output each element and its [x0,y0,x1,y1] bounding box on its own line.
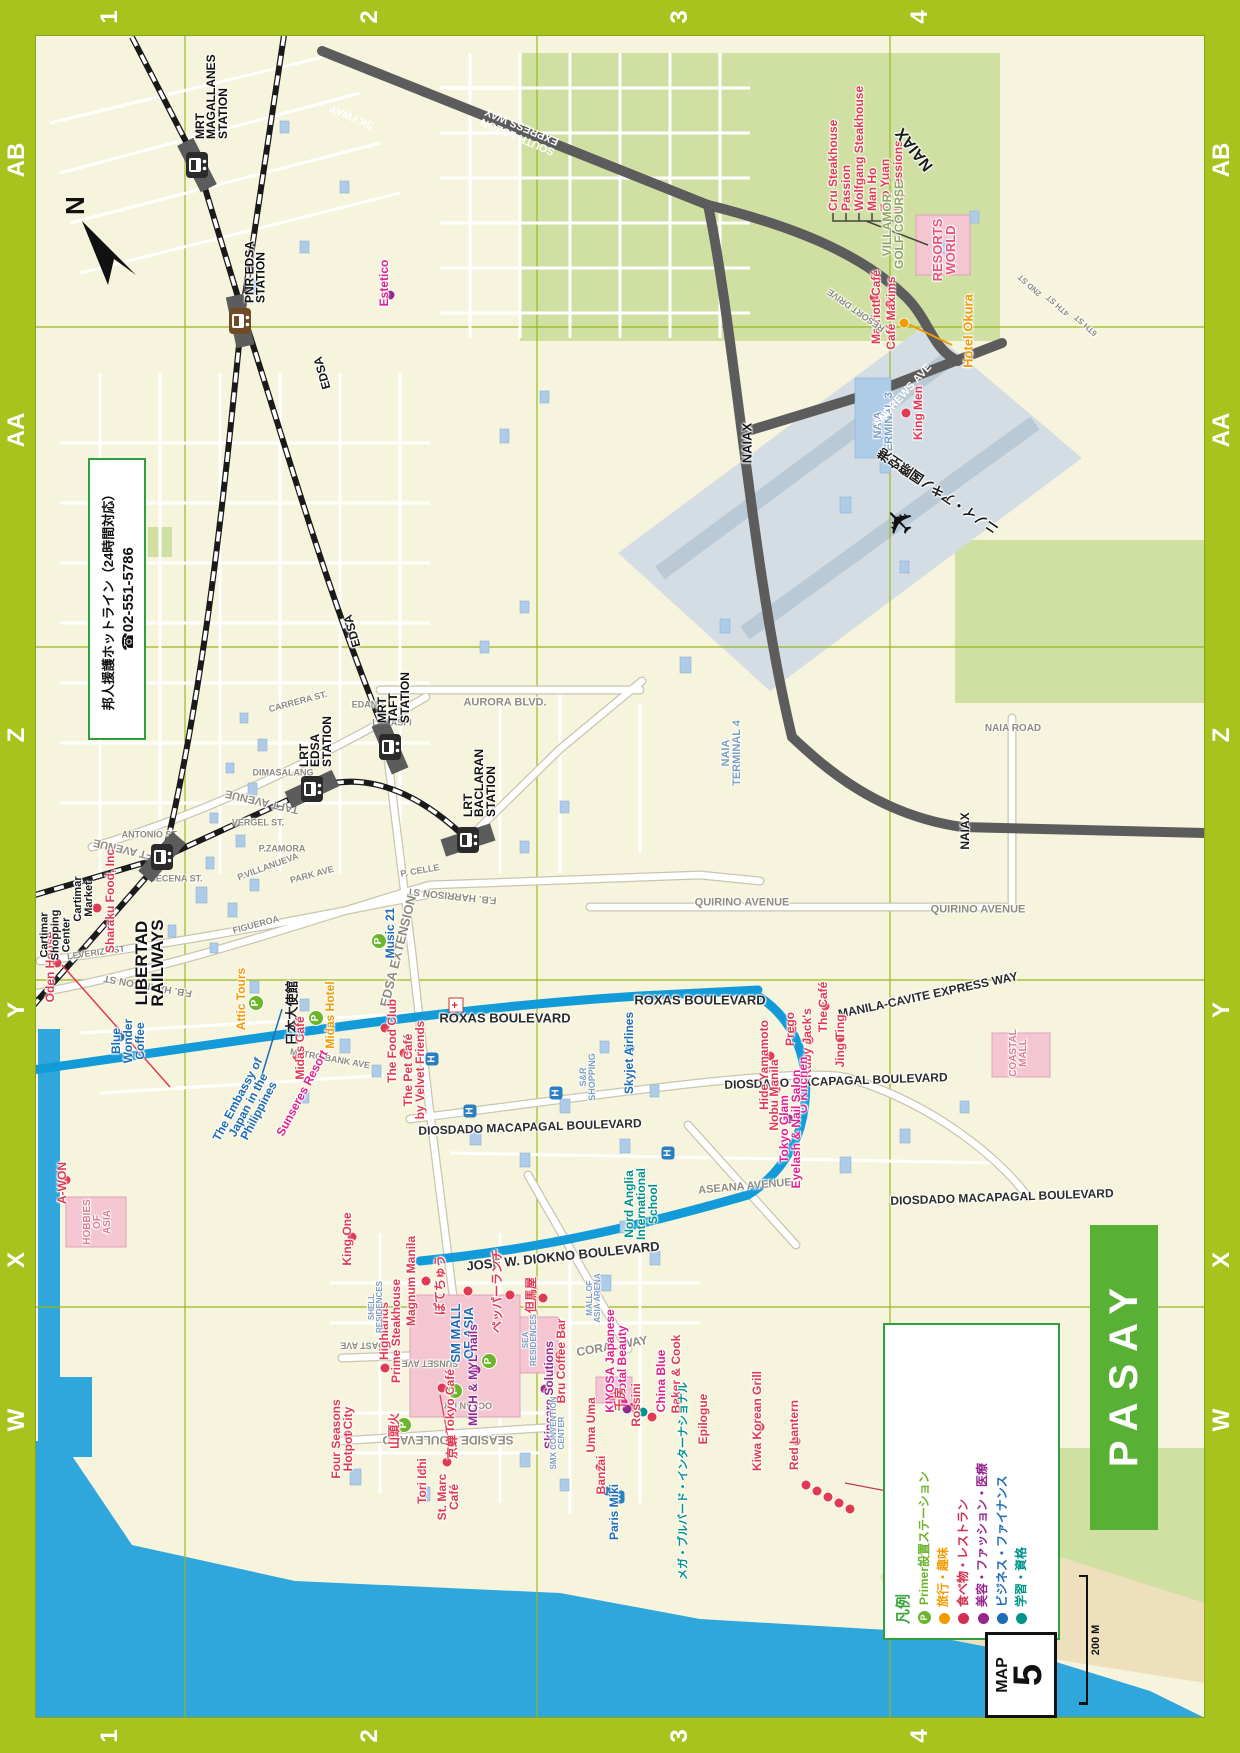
border-right [0,0,1240,35]
park-area [520,53,1000,341]
building [196,887,207,903]
poi-dot [902,409,911,418]
grid-label-2: 2 [356,10,384,23]
map-label-label: メガ・ブルバード・インターナショナル [679,1382,690,1580]
station-label-libertad-railways: LIBERTAD RAILWAYS [134,919,166,1006]
map-label-s-r: S&R SHOPPING [579,1053,597,1101]
train-icon [229,308,251,334]
map-label-label: ぽてちゅう [434,1255,446,1315]
map-label-smx-convention: SMX CONVENTION CENTER [550,1397,566,1470]
map-label-man-ho: Man Ho [866,168,878,211]
map-label-kiwa-korean-grill: Kiwa Korean Grill [751,1371,763,1471]
building [900,561,909,573]
map-label-quirino-avenue: QUIRINO AVENUE [931,905,1026,916]
station-label-mrt-magallanes-station: MRT MAGALLANES STATION [195,54,229,139]
poi-dot [539,1294,548,1303]
building [620,1139,630,1153]
map-label-label: 但馬屋 [525,1277,537,1313]
grid-label-z: Z [1208,728,1236,743]
park-area [955,540,1205,703]
train-icon [186,152,208,178]
poi-dot [813,1487,822,1496]
primer-station-icon: P [308,1010,324,1026]
category-dot-icon [939,1613,950,1624]
building [250,981,259,993]
map-label-mich-myl-nails: MICH & MYL nails [467,1324,479,1426]
map-label-nord-anglia: Nord Anglia International School [623,1168,659,1240]
map-label-midas-caf: Midas Café [294,1016,306,1079]
scale-bar-label: 200 M [1090,1575,1102,1705]
building [520,1153,530,1167]
map-label-mall-of: MALL OF ASIA ARENA [586,1273,602,1322]
map-label-estetico: Estetico [378,260,390,307]
category-dot-icon [1016,1613,1027,1624]
building [960,1101,969,1113]
building [258,739,267,751]
poi-dot [648,1413,657,1422]
building [300,999,309,1011]
legend-title: 凡例 [892,1339,913,1624]
building [168,925,176,937]
grid-label-2: 2 [356,1729,384,1742]
map-label-p-zamora: P.ZAMORA [259,845,306,854]
map-label-skyjet-airlines: Skyjet Airlines [623,1012,635,1094]
map-label-label: 京蝉 [446,1435,458,1459]
border-top [0,0,35,1753]
map-label-the-food-club: The Food Club [386,999,398,1083]
map-label-uma-uma: Uma Uma [585,1397,597,1452]
map-label-cru-steakhouse: Cru Steakhouse [827,120,839,211]
map-label-paris-miki: Paris Miki [608,1484,620,1540]
category-dot-icon [958,1613,969,1624]
category-dot-icon [978,1613,989,1624]
map-label-shell: SHELL RESIDENCES [368,1281,384,1333]
map-label-label: 山頭火 [388,1413,400,1449]
legend-item-label: 食べ物・レストラン [954,1339,973,1624]
map-label-the-caf: The Café [817,982,829,1033]
map-number-box: MAP 5 [985,1632,1057,1718]
building [650,1085,659,1097]
scale-bar: 200 M [1086,1575,1102,1705]
primer-station-icon: P [918,1611,931,1624]
primer-station-icon: P [481,1353,497,1369]
map-stage: Cru SteakhousePassionWolfgang Steakhouse… [0,0,1240,1753]
map-label-roxas-boulevard: ROXAS BOULEVARD [634,994,765,1007]
hotel-icon: H [464,1105,477,1118]
grid-label-4: 4 [906,1729,934,1742]
hotel-icon: H [662,1147,675,1160]
station-label-pnr-edsa-station: PNR EDSA STATION [245,241,268,303]
map-label-prego: Prego [784,1012,796,1046]
map-label-a-won: A-WON [56,1162,68,1204]
building [500,429,509,443]
building [600,1041,609,1053]
grid-label-w: W [3,1409,31,1432]
building [340,1039,350,1053]
map-label-china-blue: China Blue [655,1350,667,1413]
poi-dot [846,1505,855,1514]
map-label-king-one: King One [341,1212,353,1265]
grid-label-3: 3 [666,1729,694,1742]
legend-box: 凡例 PPrimer設置ステーション旅行・趣味食べ物・レストラン美容・ファッショ… [883,1323,1060,1640]
map-label-aurora-blvd: AURORA BLVD. [463,698,546,709]
map-label-tori-ichi: Tori Ichi [416,1458,428,1504]
building [970,211,979,223]
legend-items: PPrimer設置ステーション旅行・趣味食べ物・レストラン美容・ファッション・医… [915,1339,1032,1624]
building [226,763,234,773]
legend-item-label: ビジネス・ファイナンス [993,1475,1012,1607]
grid-label-4: 4 [906,10,934,23]
building [540,391,549,403]
map-label-red-lantern: Red Lantern [788,1400,800,1470]
building [340,181,349,193]
grid-label-aa: AA [3,413,31,448]
map-number: 5 [1010,1664,1046,1686]
poi-dot [506,1291,515,1300]
map-label-passion: Passion [840,165,852,211]
grid-label-ab: AB [1208,143,1236,178]
poi-dot [464,1287,473,1296]
grid-label-aa: AA [1208,413,1236,448]
map-label-naia-road: NAIA ROAD [985,724,1041,734]
legend-item-primer: PPrimer設置ステーション [915,1339,934,1624]
legend-item-label: 食べ物・レストラン [954,1499,973,1607]
map-label-sea: SEA RESIDENCES [522,1314,538,1366]
primer-station-icon: P [248,995,264,1011]
map-label-tokyo-caf: Tokyo Café [444,1369,456,1433]
map-label-label: ペッパーランチ [491,1249,503,1333]
map-label-the-pet-caf: The Pet Café by Velvet Friends [402,1021,426,1120]
building [210,813,218,823]
hotel-icon: H [426,1053,439,1066]
compass-north-arrow: N [48,183,138,303]
grid-label-y: Y [1208,1002,1236,1018]
building [228,903,237,917]
map-label-label: 千房 [614,1387,626,1411]
map-label-rossini: Rossini [630,1383,642,1426]
train-icon [379,734,401,760]
building [520,1453,530,1467]
map-label-villamor: VILLAMOR GOLF COURSE [881,181,905,269]
building [480,641,489,653]
train-icon [457,827,479,853]
hotel-icon: H [550,1087,563,1100]
map-label-st-marc: St. Marc Café [436,1474,460,1521]
map-label-attic-tours: Attic Tours [235,968,247,1030]
water-manila-bay [38,1377,92,1457]
grid-label-z: Z [3,728,31,743]
map-page: Cru SteakhousePassionWolfgang Steakhouse… [0,0,1240,1753]
north-label-glyph: N [60,196,90,215]
building [236,835,245,847]
map-label-coastal: COASTAL MALL [1009,1029,1029,1077]
map-label-cartimar: Cartimar Shopping Center [40,910,73,961]
hotline-box: 邦人援護ホットライン（24時間対応） ☎02-551-5786 [88,458,146,740]
building [250,879,259,891]
building [560,1479,569,1491]
grid-label-x: X [1208,1252,1236,1268]
map-label-cartimar: Cartimar Market [73,876,95,921]
map-label-four-seasons: Four Seasons Hotpot City [330,1399,354,1478]
map-label-naia: NAIA TERMINAL 4 [721,720,743,786]
poi-dot [824,1493,833,1502]
area-name: PASAY [1102,1276,1147,1479]
poi-dot [835,1499,844,1508]
legend-item-label: 美容・ファッション・医療 [973,1339,992,1624]
poi-dot [900,319,909,328]
grid-label-y: Y [3,1002,31,1018]
legend-item-label: 学習・資格 [1012,1339,1031,1624]
legend-item-label: 旅行・趣味 [934,1339,953,1624]
building [240,713,248,723]
map-label-midas-hotel: Midas Hotel [324,981,336,1048]
legend-item-label: 美容・ファッション・医療 [973,1463,992,1607]
map-label-banzai: Banzai [595,1456,607,1495]
building [840,497,851,513]
map-label-tokyo-glam: Tokyo Glam Eyelash & Nail Salon [778,1070,802,1189]
building [210,943,218,953]
building [680,657,691,673]
poi-dot [422,1277,431,1286]
building [206,857,214,869]
map-label-music-21: Music 21 [384,908,396,959]
hotline-phone: ☎02-551-5786 [119,547,137,651]
map-label-quirino-avenue: QUIRINO AVENUE [695,898,790,909]
map-label-blue: Blue Wonder Coffee [110,1019,146,1063]
building [520,601,529,613]
station-label-lrt-edsa-station: LRT EDSA STATION [299,716,333,767]
border-bottom [1205,0,1240,1753]
hotline-text: 邦人援護ホットライン（24時間対応） [98,488,117,710]
legend-item-label: 旅行・趣味 [934,1547,953,1607]
building [560,801,569,813]
grid-label-1: 1 [96,10,124,23]
map-label-bru-coffee-bar: Bru Coffee Bar [555,1319,567,1404]
building [280,121,289,133]
map-label-epilogue: Epilogue [697,1394,709,1445]
scale-bar-line [1086,1575,1088,1705]
legend-item-label: 学習・資格 [1012,1547,1031,1607]
train-icon [151,844,173,870]
grid-label-ab: AB [3,143,31,178]
map-label-resorts: RESORTS WORLD [931,219,957,282]
map-label-wolfgang-steakhouse: Wolfgang Steakhouse [853,86,865,211]
map-label-caf-maxims: Café Maxims [885,276,897,349]
area-name-bar: PASAY [1090,1225,1158,1530]
legend-item-label: Primer設置ステーション [915,1471,934,1605]
legend-item-label: ビジネス・ファイナンス [993,1339,1012,1624]
map-label-magnum-manila: Magnum Manila [405,1236,417,1326]
station-label-mrt-taft-station: MRT TAFT STATION [377,672,411,723]
building [840,1157,851,1173]
map-label-jing-ting: Jing Ting [834,1014,846,1067]
grid-label-1: 1 [96,1729,124,1742]
map-label-king-men: King Men [912,386,924,440]
grid-label-3: 3 [666,10,694,23]
category-dot-icon [997,1613,1008,1624]
map-label-hotel-okura: Hotel Okura [962,294,975,368]
map-label-naiax: NAIAX [959,812,971,849]
train-icon [301,776,323,802]
map-label-sharaku-food-inc: Sharaku Food, Inc [104,849,116,953]
grid-label-w: W [1208,1409,1236,1432]
station-label-lrt-baclaran-station: LRT BACLARAN STATION [463,749,497,817]
building [900,1129,910,1143]
map-label-naiax: NAIAX [741,423,754,463]
building [560,1099,570,1113]
poi-dot [802,1481,811,1490]
map-label-roxas-boulevard: ROXAS BOULEVARD [439,1012,570,1025]
building [372,1065,381,1077]
grid-label-x: X [3,1252,31,1268]
building [300,241,309,253]
building [720,619,730,633]
map-label-hobbies: HOBBIES OF ASIA [83,1199,113,1245]
border-left [0,1718,1240,1753]
map-label-vergel-st: VERGEL ST. [232,819,284,828]
building [520,841,529,853]
